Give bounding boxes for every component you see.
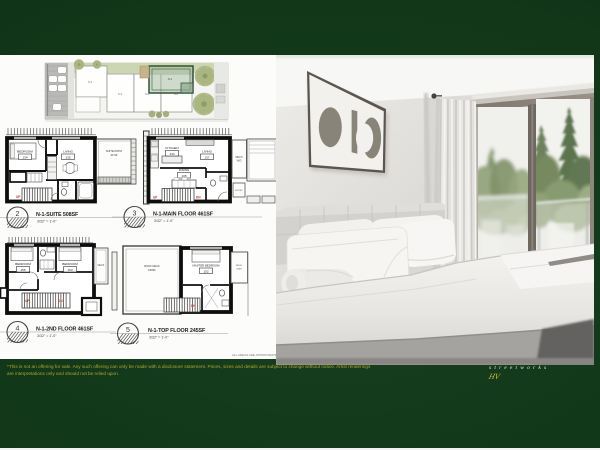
svg-text:134: 134 [22,155,27,159]
svg-text:DN: DN [191,304,196,308]
svg-text:N-1-SUITE 508SF: N-1-SUITE 508SF [36,212,79,218]
svg-text:ENTRY: ENTRY [235,190,243,192]
svg-text:3/32" = 1'-0": 3/32" = 1'-0" [37,220,57,224]
svg-text:N-4: N-4 [88,80,93,84]
svg-text:LIVING: LIVING [63,150,74,154]
svg-text:BEDROOM: BEDROOM [62,262,78,266]
svg-text:3/32" = 1'-0": 3/32" = 1'-0" [149,336,169,340]
svg-text:3/32" = 1'-0": 3/32" = 1'-0" [154,219,174,223]
svg-text:135: 135 [65,155,70,159]
svg-text:40 SF: 40 SF [110,153,118,157]
svg-text:ROOF DECK: ROOF DECK [144,264,160,268]
svg-text:MASTER BEDROOM: MASTER BEDROOM [193,264,221,268]
svg-text:BEDROOM: BEDROOM [17,150,33,154]
svg-text:15SF: 15SF [236,269,242,271]
svg-text:SUITE PATIO: SUITE PATIO [106,149,122,153]
svg-text:DN: DN [196,196,201,200]
svg-text:ALL AREAS ARE APPROXIMATE: ALL AREAS ARE APPROXIMATE [232,353,276,357]
svg-text:5: 5 [126,327,130,334]
svg-text:2: 2 [16,211,20,218]
svg-text:137: 137 [204,155,209,159]
svg-text:3/32" = 1'-0": 3/32" = 1'-0" [37,334,57,338]
svg-text:DECK: DECK [98,264,105,267]
svg-text:152: 152 [203,269,208,273]
svg-text:DN: DN [58,299,63,303]
svg-text:BEDROOM: BEDROOM [15,262,31,266]
svg-text:3: 3 [133,211,137,218]
svg-text:153: 153 [67,268,72,272]
svg-text:180SF: 180SF [148,268,156,272]
svg-text:KITCHEN: KITCHEN [165,146,178,150]
svg-text:135: 135 [181,174,186,178]
svg-text:N-1: N-1 [168,77,173,81]
svg-text:N-1-TOP FLOOR 245SF: N-1-TOP FLOOR 245SF [148,328,206,334]
svg-text:N-1-2ND FLOOR 461SF: N-1-2ND FLOOR 461SF [36,327,94,333]
svg-text:4: 4 [16,326,20,333]
svg-text:W/D: W/D [237,160,242,163]
svg-text:N-3: N-3 [118,92,123,96]
svg-text:DECK: DECK [236,265,243,267]
svg-text:LIVING: LIVING [202,150,213,154]
svg-text:134: 134 [169,152,174,156]
svg-text:N-1-MAIN FLOOR 461SF: N-1-MAIN FLOOR 461SF [153,212,214,218]
svg-text:155: 155 [20,268,25,272]
